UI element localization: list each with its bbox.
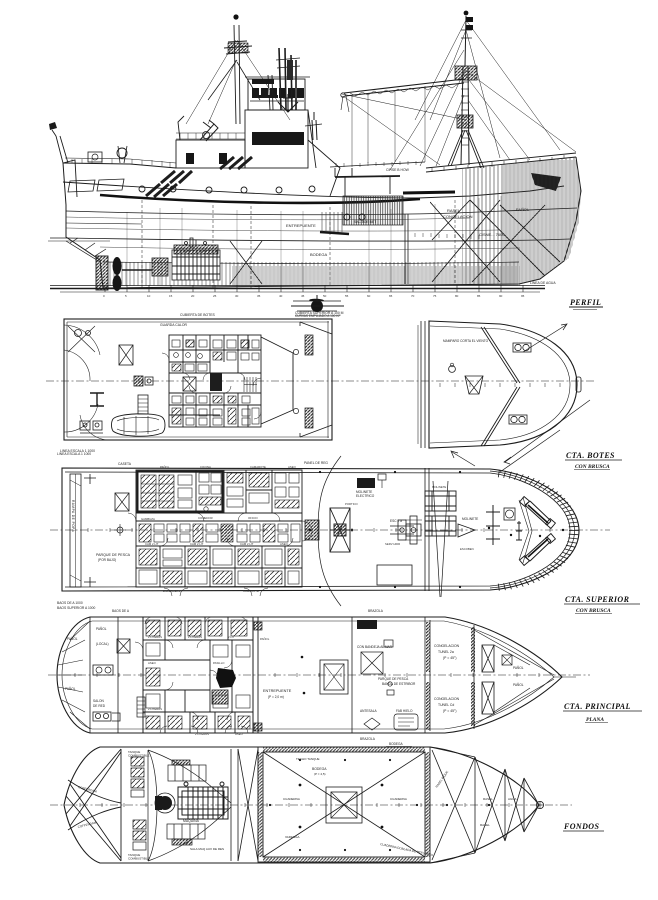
svg-text:(P = 45°): (P = 45°) — [443, 709, 456, 713]
svg-text:AGUA: AGUA — [508, 797, 517, 801]
svg-text:(P = 45°): (P = 45°) — [443, 656, 456, 660]
svg-text:ASEO: ASEO — [288, 465, 297, 469]
svg-text:45: 45 — [301, 294, 305, 298]
svg-text:PORTICO: PORTICO — [345, 502, 359, 506]
svg-text:90: 90 — [499, 294, 503, 298]
svg-text:30: 30 — [235, 294, 239, 298]
svg-text:35: 35 — [257, 294, 261, 298]
svg-text:BRAZOLA: BRAZOLA — [360, 737, 376, 741]
svg-text:LINEA ESCALA 1 1000: LINEA ESCALA 1 1000 — [57, 452, 91, 456]
svg-text:BRAZOLA: BRAZOLA — [368, 609, 384, 613]
svg-text:ASEO: ASEO — [148, 661, 157, 665]
svg-text:PARQUE DE PESCA: PARQUE DE PESCA — [378, 677, 409, 681]
svg-text:RASEL: RASEL — [447, 208, 461, 213]
svg-text:PAÑOL: PAÑOL — [160, 464, 170, 469]
svg-text:ENTREPUENTE: ENTREPUENTE — [263, 689, 292, 693]
svg-text:70: 70 — [411, 294, 415, 298]
svg-text:PANEL DE REG: PANEL DE REG — [304, 461, 328, 465]
svg-text:CIRSE B HOW: CIRSE B HOW — [386, 168, 410, 172]
svg-text:CUBIERTA DE BOTES: CUBIERTA DE BOTES — [180, 313, 215, 317]
svg-text:80: 80 — [455, 294, 459, 298]
svg-text:CON BRUSCA: CON BRUSCA — [576, 608, 611, 614]
svg-text:MAQUINA: MAQUINA — [183, 819, 200, 823]
svg-text:95: 95 — [521, 294, 525, 298]
svg-text:SERV HIDR: SERV HIDR — [385, 542, 400, 546]
svg-text:CAM 2 LIT: CAM 2 LIT — [145, 542, 159, 546]
svg-text:CONGELACION: CONGELACION — [434, 644, 460, 648]
svg-text:RASEL: RASEL — [483, 797, 493, 801]
svg-text:SAC ADE BET: SAC ADE BET — [354, 220, 376, 224]
svg-text:2 LITERAS: 2 LITERAS — [148, 707, 162, 711]
svg-text:ASEO: ASEO — [235, 732, 244, 736]
svg-text:CISNE... 7600: CISNE... 7600 — [479, 232, 505, 237]
svg-text:65: 65 — [389, 294, 393, 298]
svg-text:60: 60 — [367, 294, 371, 298]
svg-text:PAÑOL: PAÑOL — [513, 682, 524, 687]
svg-text:(LOCAL): (LOCAL) — [96, 642, 109, 646]
svg-text:CAMAROTE: CAMAROTE — [243, 589, 259, 593]
svg-text:FONDOS: FONDOS — [563, 822, 599, 831]
svg-text:CTA. SUPERIOR: CTA. SUPERIOR — [565, 595, 630, 604]
svg-text:CUBIERTA SUPERIOR A 100 M: CUBIERTA SUPERIOR A 100 M — [295, 311, 344, 315]
svg-text:2 LITERAS: 2 LITERAS — [188, 635, 202, 639]
svg-text:(P = 4,5): (P = 4,5) — [314, 772, 326, 776]
svg-text:ESCOBEN: ESCOBEN — [460, 547, 474, 551]
svg-text:CON BRUSCA: CON BRUSCA — [575, 464, 610, 470]
svg-text:2 LIT: 2 LIT — [228, 635, 235, 639]
svg-text:ELECTRICO: ELECTRICO — [356, 494, 375, 498]
svg-text:ASEO: ASEO — [280, 542, 289, 546]
svg-text:40: 40 — [279, 294, 283, 298]
svg-text:BODEGA: BODEGA — [389, 742, 404, 746]
svg-text:CUADERNA: CUADERNA — [283, 797, 300, 801]
svg-text:CONGELACION: CONGELACION — [443, 214, 473, 219]
svg-text:2 LITERAS: 2 LITERAS — [148, 635, 162, 639]
svg-text:GUARDA CALOR: GUARDA CALOR — [160, 323, 187, 327]
svg-text:85: 85 — [477, 294, 481, 298]
svg-text:ESC 1 a: ESC 1 a — [390, 519, 402, 523]
svg-text:PLANA: PLANA — [586, 717, 604, 723]
svg-text:PARQUE DE PESCA: PARQUE DE PESCA — [96, 553, 131, 557]
svg-text:PAÑOL: PAÑOL — [65, 686, 76, 691]
svg-text:RAMPA DE POPA: RAMPA DE POPA — [71, 500, 75, 533]
svg-text:CONGELACION: CONGELACION — [434, 697, 460, 701]
svg-text:MOLINETE: MOLINETE — [432, 485, 446, 489]
svg-text:CAMAROTE: CAMAROTE — [250, 465, 266, 469]
svg-text:20: 20 — [191, 294, 195, 298]
svg-text:PASILLO: PASILLO — [213, 661, 225, 665]
svg-text:CUADERNA: CUADERNA — [390, 797, 407, 801]
svg-text:COCINA: COCINA — [200, 465, 211, 469]
svg-text:25: 25 — [213, 294, 217, 298]
svg-text:RASEL: RASEL — [480, 823, 490, 827]
svg-text:BODEGA: BODEGA — [310, 252, 327, 257]
svg-text:55: 55 — [345, 294, 349, 298]
svg-text:SALON: SALON — [93, 699, 105, 703]
svg-text:PAÑOL: PAÑOL — [513, 665, 524, 670]
svg-text:TUNEL 2a: TUNEL 2a — [438, 650, 454, 654]
svg-text:GAMBUZA: GAMBUZA — [141, 517, 155, 521]
svg-text:CASETA: CASETA — [118, 462, 132, 466]
svg-text:PERFIL: PERFIL — [570, 298, 601, 307]
svg-text:BAOS DE A 1000: BAOS DE A 1000 — [57, 601, 83, 605]
svg-text:PAÑOL: PAÑOL — [260, 636, 270, 641]
svg-text:TUNEL Cd: TUNEL Cd — [438, 703, 454, 707]
svg-text:50: 50 — [323, 294, 327, 298]
svg-text:ENFERMERIA: ENFERMERIA — [163, 589, 181, 593]
svg-text:OFICIO: OFICIO — [248, 516, 258, 520]
svg-text:COMBUSTIBLE: COMBUSTIBLE — [128, 754, 150, 758]
svg-text:LINEA DE AGUA: LINEA DE AGUA — [530, 281, 556, 285]
svg-text:ENTREPUENTE: ENTREPUENTE — [286, 223, 316, 228]
svg-text:BAOS DE A: BAOS DE A — [112, 609, 130, 613]
svg-text:BANDA DE ESTRIBOR: BANDA DE ESTRIBOR — [382, 682, 416, 686]
svg-text:15: 15 — [169, 294, 173, 298]
svg-text:PAÑOL: PAÑOL — [67, 636, 78, 641]
svg-text:CAM 2 LIT: CAM 2 LIT — [190, 542, 204, 546]
svg-text:FAB HIELO: FAB HIELO — [396, 709, 413, 713]
svg-text:VARENGA: VARENGA — [285, 835, 299, 839]
svg-text:CTA. PRINCIPAL: CTA. PRINCIPAL — [564, 702, 631, 711]
svg-text:COMEDOR: COMEDOR — [198, 516, 213, 520]
svg-text:MAMPARO CORTA EL VIENTO: MAMPARO CORTA EL VIENTO — [443, 339, 489, 343]
svg-text:DE RED: DE RED — [93, 704, 106, 708]
svg-text:CTA. BOTES: CTA. BOTES — [566, 451, 615, 460]
svg-text:MOLINETE: MOLINETE — [462, 517, 478, 521]
svg-text:75: 75 — [433, 294, 437, 298]
svg-text:(P = 2,0 m): (P = 2,0 m) — [268, 695, 284, 699]
svg-text:PAÑOL: PAÑOL — [96, 626, 107, 631]
svg-text:CON BANDEJA AL MAR: CON BANDEJA AL MAR — [357, 645, 393, 649]
svg-text:2 LITERAS: 2 LITERAS — [195, 732, 209, 736]
svg-text:10: 10 — [147, 294, 151, 298]
svg-text:BODEGA: BODEGA — [312, 767, 327, 771]
svg-text:COMBUSTIBLE: COMBUSTIBLE — [128, 857, 150, 861]
svg-text:SALA MAQ AUX DE RES: SALA MAQ AUX DE RES — [190, 847, 224, 851]
svg-text:BAOS SUPERIOR A 1000: BAOS SUPERIOR A 1000 — [57, 606, 95, 610]
svg-text:PAÑOL: PAÑOL — [516, 207, 530, 212]
svg-text:CAM 2 LIT: CAM 2 LIT — [240, 542, 254, 546]
svg-text:(POR BAJO): (POR BAJO) — [98, 558, 116, 562]
svg-text:ANTESALA: ANTESALA — [360, 709, 378, 713]
